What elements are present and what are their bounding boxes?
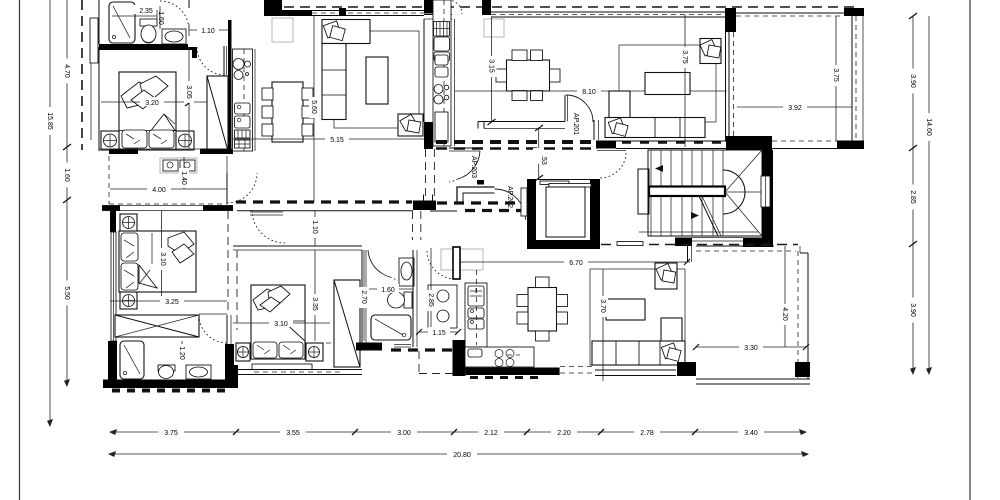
svg-text:1.15: 1.15 <box>432 330 446 337</box>
svg-text:3.05: 3.05 <box>185 85 192 99</box>
svg-text:1.40: 1.40 <box>180 171 187 185</box>
svg-text:2.85: 2.85 <box>909 190 916 204</box>
svg-text:3.55: 3.55 <box>286 430 300 437</box>
svg-text:1.60: 1.60 <box>157 11 164 25</box>
svg-text:2.20: 2.20 <box>557 430 571 437</box>
svg-text:2.12: 2.12 <box>484 430 498 437</box>
svg-text:AP.203: AP.203 <box>470 156 477 178</box>
svg-text:2.85: 2.85 <box>427 293 434 307</box>
svg-text:4.20: 4.20 <box>781 307 788 321</box>
svg-text:1.10: 1.10 <box>201 28 215 35</box>
svg-text:3.10: 3.10 <box>159 252 166 266</box>
svg-text:3.00: 3.00 <box>397 430 411 437</box>
svg-text:4.70: 4.70 <box>63 64 70 78</box>
svg-text:3.30: 3.30 <box>744 345 758 352</box>
svg-text:2.78: 2.78 <box>640 430 654 437</box>
svg-text:AP.202: AP.202 <box>506 186 513 208</box>
svg-text:14.60: 14.60 <box>925 118 932 136</box>
svg-text:3.15: 3.15 <box>488 59 495 73</box>
svg-text:3.25: 3.25 <box>165 299 179 306</box>
svg-text:3.75: 3.75 <box>681 50 688 64</box>
svg-text:20.80: 20.80 <box>453 452 471 459</box>
svg-text:1.20: 1.20 <box>178 346 185 360</box>
svg-text:1.60: 1.60 <box>63 168 70 182</box>
svg-text:3.10: 3.10 <box>274 321 288 328</box>
svg-text:3.75: 3.75 <box>832 68 839 82</box>
svg-text:.53: .53 <box>540 155 547 165</box>
svg-text:3.75: 3.75 <box>164 430 178 437</box>
svg-text:6.70: 6.70 <box>569 260 583 267</box>
svg-text:3.90: 3.90 <box>909 303 916 317</box>
svg-text:3.20: 3.20 <box>145 100 159 107</box>
svg-text:3.70: 3.70 <box>599 299 606 313</box>
svg-text:5.50: 5.50 <box>63 286 70 300</box>
svg-text:8.10: 8.10 <box>582 89 596 96</box>
svg-text:3.35: 3.35 <box>311 297 318 311</box>
svg-text:AP.201: AP.201 <box>572 113 579 135</box>
svg-text:3.92: 3.92 <box>788 105 802 112</box>
svg-text:1.10: 1.10 <box>311 220 318 234</box>
svg-text:15.85: 15.85 <box>46 112 53 130</box>
svg-text:1.60: 1.60 <box>381 287 395 294</box>
svg-text:2.70: 2.70 <box>360 290 367 304</box>
svg-text:3.40: 3.40 <box>744 430 758 437</box>
svg-text:2.35: 2.35 <box>139 8 153 15</box>
svg-text:5.15: 5.15 <box>330 137 344 144</box>
svg-text:5.60: 5.60 <box>310 100 317 114</box>
svg-text:4.00: 4.00 <box>152 187 166 194</box>
svg-text:3.90: 3.90 <box>909 74 916 88</box>
